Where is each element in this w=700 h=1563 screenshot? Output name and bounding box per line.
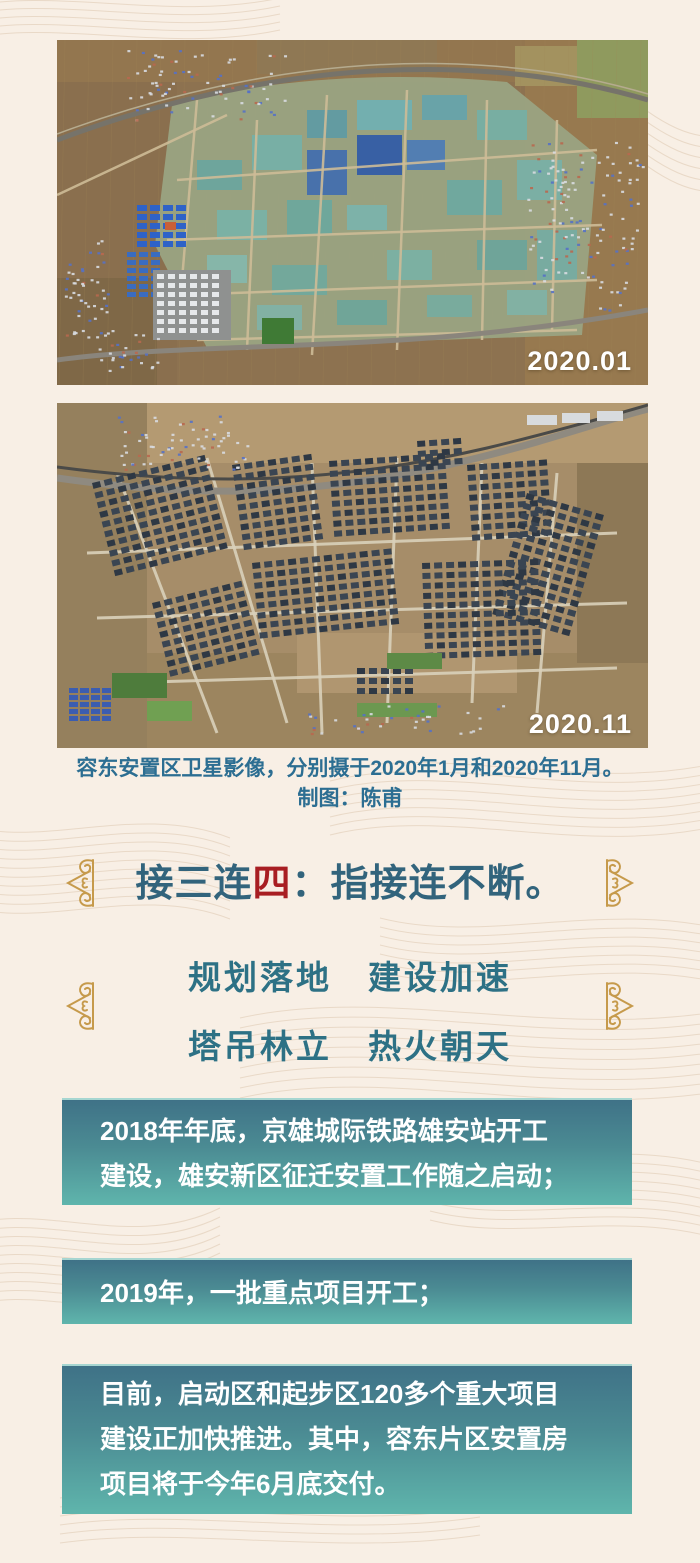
date-badge: 2020.11 [529, 709, 632, 740]
info-box-line: 2018年年底，京雄城际铁路雄安站开工 [100, 1109, 612, 1154]
figure-caption: 容东安置区卫星影像，分别摄于2020年1月和2020年11月。 制图：陈甫 [0, 754, 700, 814]
info-box-line: 项目将于今年6月底交付。 [100, 1462, 612, 1507]
info-box-line: 2019年，一批重点项目开工； [100, 1260, 612, 1326]
info-box-line: 建设正加快推进。其中，容东片区安置房 [100, 1417, 612, 1462]
heading-prefix: 接三连 [135, 860, 252, 905]
heading-highlight: 四 [252, 860, 291, 905]
date-badge: 2020.01 [527, 346, 632, 377]
infographic-page: 2020.01 2020.11 容东安置区卫星影像，分别摄于2020年1月和20… [0, 0, 700, 1563]
satellite-image-2020-01 [57, 40, 648, 385]
info-box-current: 目前，启动区和起步区120多个重大项目建设正加快推进。其中，容东片区安置房项目将… [62, 1364, 632, 1514]
section-heading: 接三连四：指接连不断。 [0, 852, 700, 907]
satellite-image-2020-11 [57, 403, 648, 748]
satellite-figure-2020-11: 2020.11 [57, 403, 648, 748]
info-box-line: 目前，启动区和起步区120多个重大项目 [100, 1372, 612, 1417]
slogan-line-1: 规划落地 建设加速 [0, 956, 700, 1000]
info-box-line: 建设，雄安新区征迁安置工作随之启动； [100, 1154, 612, 1199]
caption-line-1: 容东安置区卫星影像，分别摄于2020年1月和2020年11月。 [0, 754, 700, 784]
slogan-block: 规划落地 建设加速 塔吊林立 热火朝天 [0, 956, 700, 1094]
slogan-line-2: 塔吊林立 热火朝天 [0, 1025, 700, 1069]
info-box-2018: 2018年年底，京雄城际铁路雄安站开工建设，雄安新区征迁安置工作随之启动； [62, 1098, 632, 1205]
caption-line-2: 制图：陈甫 [0, 784, 700, 814]
heading-suffix: ：指接连不断。 [292, 860, 565, 905]
satellite-figure-2020-01: 2020.01 [57, 40, 648, 385]
info-box-2019: 2019年，一批重点项目开工； [62, 1258, 632, 1324]
